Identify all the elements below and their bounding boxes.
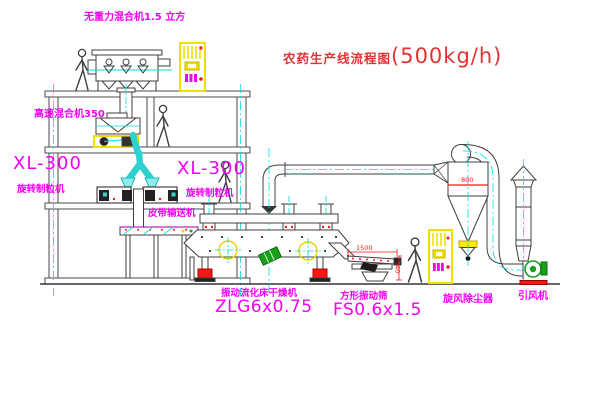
diagram-title: 农药生产线流程图(500kg/h) [283, 44, 502, 68]
granulator-discharge-duct [134, 189, 144, 227]
granulator-right-model-label: XL-300 [177, 160, 246, 178]
granulator-hoppers [121, 178, 159, 187]
cabinet-symbol [185, 74, 197, 82]
granulator-right-name-label: 旋转制粒机 [186, 189, 234, 199]
person-ground [409, 238, 422, 282]
high-speed-mixer-label: 高速混合机350 [34, 110, 105, 120]
cyclone-label: 旋风除尘器 [443, 295, 493, 305]
induced-draft-fan [520, 261, 547, 285]
belt-conveyor-label: 皮带输送机 [148, 209, 196, 219]
granulator-left-model-label: XL-300 [13, 155, 82, 173]
person-floor2 [157, 105, 169, 146]
sieve-height-dimension: 540 [394, 261, 401, 273]
control-cabinet-1 [180, 43, 205, 91]
pesticide-line-flow-diagram: 农药生产线流程图(500kg/h) 无重力混合机1.5 立方 高速混合机350 … [0, 0, 600, 403]
granulator-left-name-label: 旋转制粒机 [17, 185, 65, 195]
cabinet-symbol [433, 263, 444, 271]
sieve-length-dimension: 1500 [356, 245, 373, 252]
gravity-mixer-label: 无重力混合机1.5 立方 [84, 13, 185, 23]
cyclone-diameter-dimension: 800 [461, 177, 473, 184]
indicator-dot [199, 46, 202, 49]
belt-conveyor [120, 227, 198, 278]
rotary-granulator-right [143, 187, 178, 203]
sieve-model-label: FS0.6x1.5 [333, 302, 422, 319]
title-capacity: (500kg/h) [391, 44, 502, 68]
dryer-model-label: ZLG6x0.75 [215, 299, 313, 316]
fan-label: 引风机 [518, 292, 548, 302]
control-cabinet-2 [429, 230, 452, 283]
title-chinese: 农药生产线流程图 [283, 48, 391, 67]
person-roof [76, 49, 88, 90]
cyclone-inlet-taper [434, 162, 448, 183]
rotary-granulator-left [97, 187, 132, 203]
